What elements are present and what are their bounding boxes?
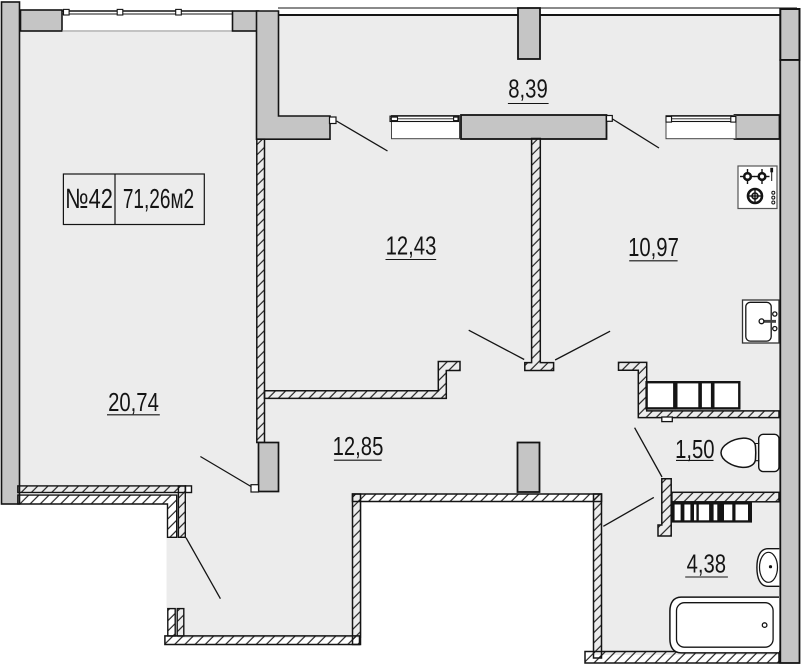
svg-text:71,26м2: 71,26м2 [123, 183, 194, 215]
svg-text:12,85: 12,85 [333, 432, 384, 461]
svg-text:№42: №42 [65, 183, 113, 214]
svg-text:8,39: 8,39 [508, 74, 547, 103]
svg-text:12,43: 12,43 [386, 231, 437, 260]
svg-text:4,38: 4,38 [687, 549, 726, 578]
svg-text:10,97: 10,97 [628, 233, 679, 262]
svg-text:1,50: 1,50 [675, 435, 714, 464]
svg-text:20,74: 20,74 [108, 388, 159, 417]
